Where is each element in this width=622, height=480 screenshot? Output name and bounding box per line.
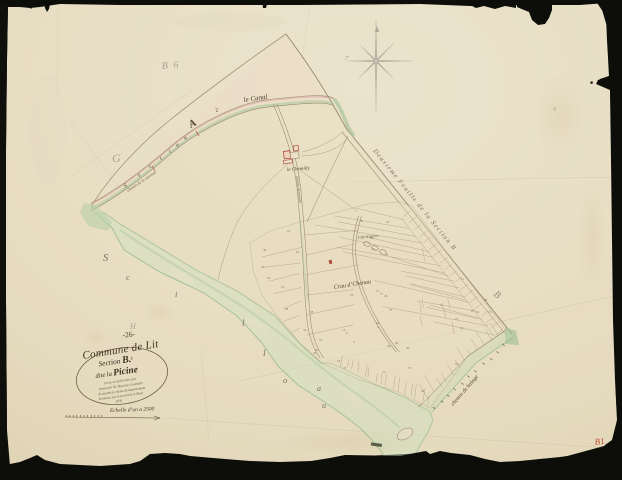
svg-text:S: S — [103, 253, 109, 264]
svg-text:54: 54 — [267, 276, 271, 280]
svg-text:55: 55 — [281, 285, 285, 289]
svg-text:72: 72 — [382, 370, 386, 374]
svg-text:14: 14 — [476, 310, 480, 314]
svg-text:28: 28 — [385, 253, 389, 257]
svg-text:98: 98 — [484, 298, 488, 302]
svg-text:B1: B1 — [594, 436, 605, 447]
svg-text:79: 79 — [408, 366, 412, 370]
svg-text:a: a — [317, 384, 321, 393]
svg-text:66: 66 — [376, 321, 380, 325]
svg-text:79: 79 — [319, 338, 323, 342]
svg-text:34: 34 — [303, 328, 307, 332]
svg-text:52: 52 — [386, 220, 390, 224]
svg-text:c: c — [126, 272, 130, 282]
svg-text:47: 47 — [343, 366, 347, 370]
svg-text:64: 64 — [421, 389, 425, 393]
svg-text:69: 69 — [360, 219, 364, 223]
svg-text:93: 93 — [261, 265, 265, 269]
svg-text:l: l — [242, 319, 245, 329]
svg-text:11: 11 — [461, 277, 464, 281]
svg-text:77: 77 — [380, 292, 384, 296]
svg-text:87: 87 — [471, 309, 475, 313]
svg-text:B 6: B 6 — [161, 59, 180, 72]
svg-text:98: 98 — [285, 307, 289, 311]
svg-text:-26-: -26- — [122, 329, 136, 339]
svg-text:o: o — [283, 375, 287, 385]
svg-text:81: 81 — [296, 250, 300, 254]
svg-text:90: 90 — [406, 346, 410, 350]
svg-text:98: 98 — [395, 341, 399, 345]
svg-text:38: 38 — [310, 310, 314, 314]
svg-text:l: l — [263, 349, 266, 359]
svg-text:22: 22 — [287, 229, 291, 233]
svg-text:74: 74 — [488, 310, 492, 314]
svg-text:26: 26 — [387, 344, 391, 348]
svg-text:9: 9 — [553, 107, 556, 113]
svg-text:73: 73 — [389, 308, 393, 312]
svg-text:62: 62 — [455, 362, 459, 366]
svg-text:18: 18 — [460, 326, 464, 330]
svg-text:u: u — [322, 401, 326, 410]
svg-text:49: 49 — [384, 294, 388, 298]
svg-text:18: 18 — [337, 359, 341, 363]
svg-text:54: 54 — [350, 293, 354, 297]
svg-text:G: G — [112, 151, 121, 165]
svg-text:30: 30 — [263, 248, 267, 252]
svg-text:22: 22 — [455, 317, 459, 321]
svg-text:15: 15 — [372, 247, 376, 251]
